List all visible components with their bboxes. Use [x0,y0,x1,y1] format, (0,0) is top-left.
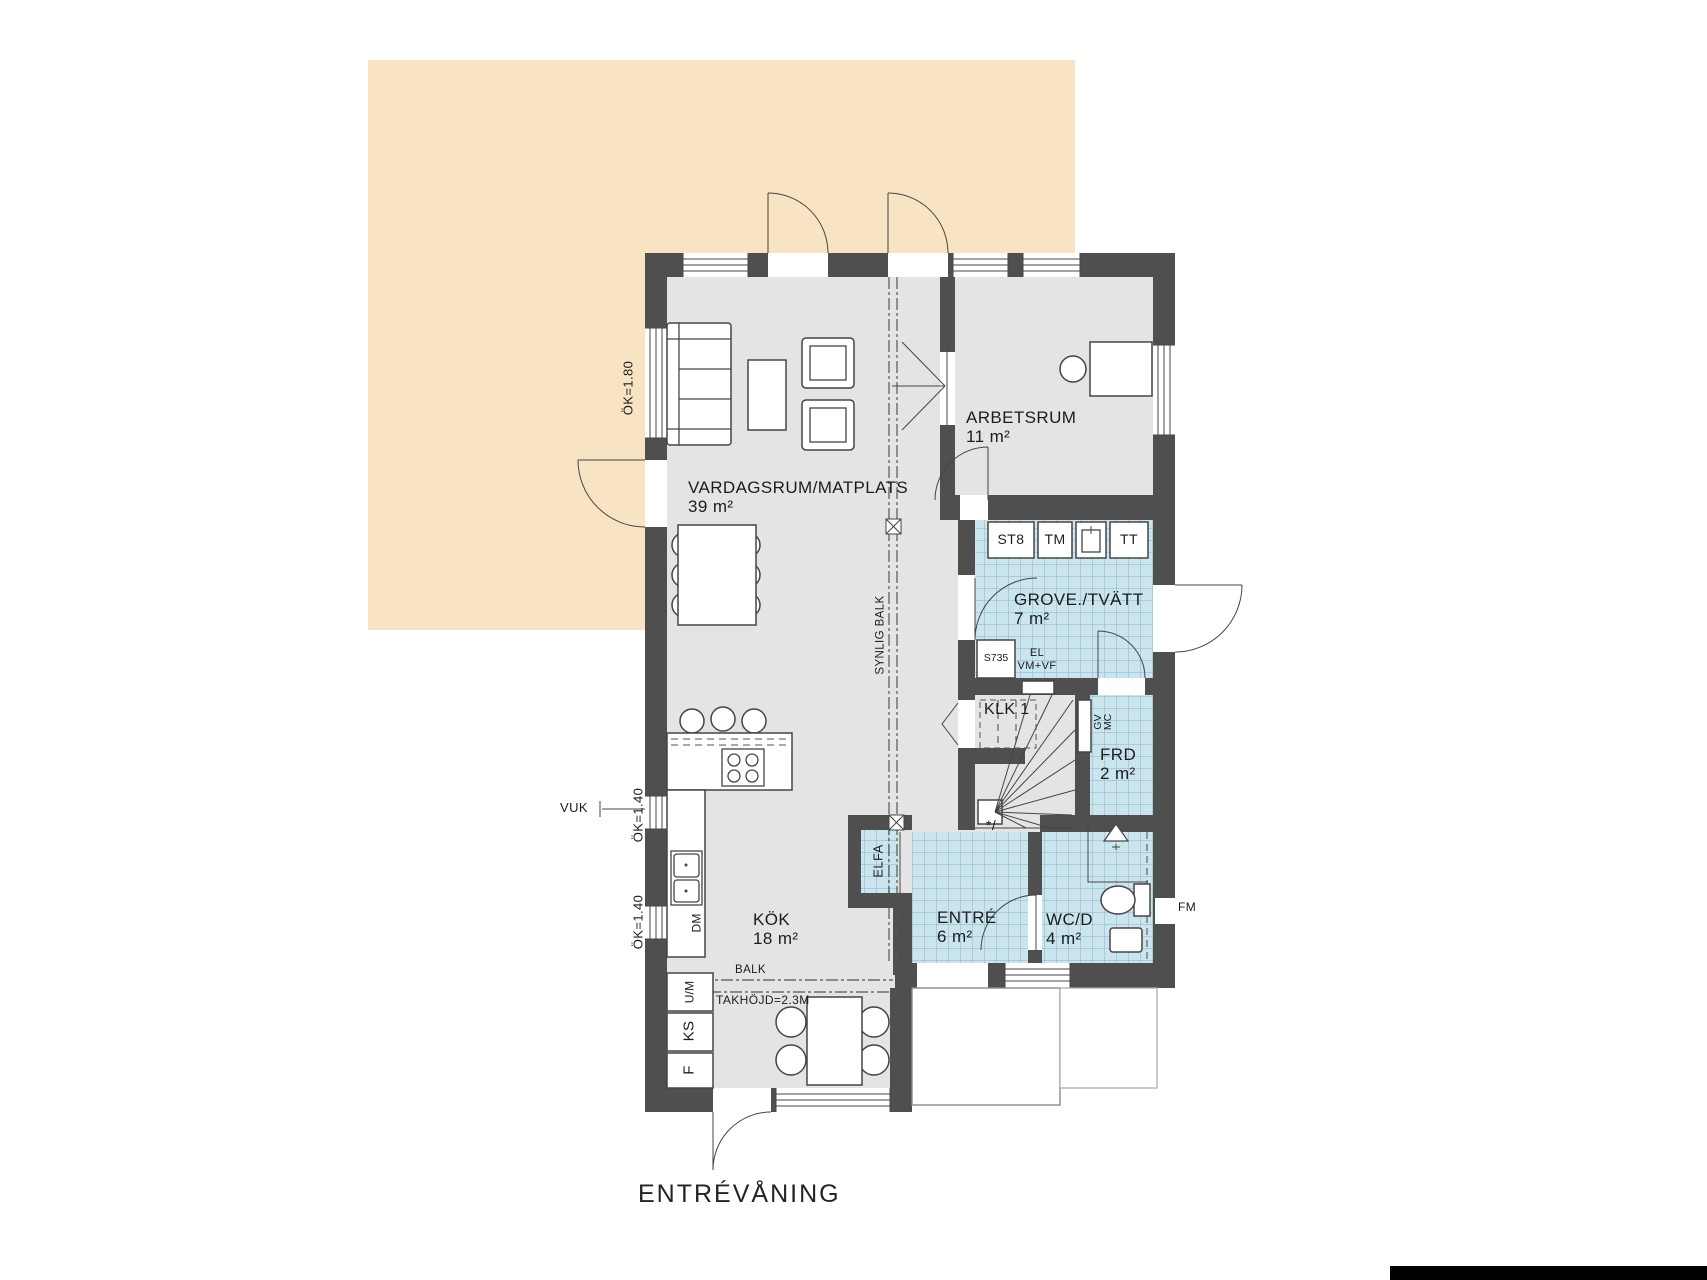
label-f: F [682,1065,699,1075]
window-entre-front [1005,963,1070,988]
window-right-arbetsrum [1153,345,1175,435]
window-left-living [645,328,667,438]
label-um: U/M [683,981,696,1004]
washbasin [1110,928,1142,952]
label-dm: DM [690,913,703,932]
room-label-vardagsrum: VARDAGSRUM/MATPLATS 39 m² [688,478,908,516]
nook-table [807,997,862,1085]
label-vmvf: VM+VF [1018,660,1057,672]
room-name: KÖK [753,910,798,929]
kitchen-peninsula [667,733,792,790]
entrance-porch [912,988,1157,1105]
beam-symbol-top [886,519,901,534]
room-label-frd: FRD 2 m² [1100,745,1136,783]
bar-stool [711,707,735,731]
label-fm: FM [1178,901,1196,914]
room-name: VARDAGSRUM/MATPLATS [688,478,908,497]
room-label-grovtvatt: GROVE./TVÄTT 7 m² [1014,590,1143,628]
label-floor-change: */ [986,818,996,834]
room-name: ARBETSRUM [966,408,1076,427]
room-name: ENTRÉ [937,908,997,927]
desk-chair [1060,356,1086,382]
label-tt: TT [1120,532,1138,548]
desk [1090,342,1152,396]
label-s735: S735 [984,653,1009,665]
wall-niche [1022,681,1054,694]
fm-niche [1155,898,1175,924]
label-vuk: VUK [560,801,588,816]
room-label-entre: ENTRÉ 6 m² [937,908,997,946]
room-area: 11 m² [966,427,1076,446]
label-ok140-lower: ÖK=1.40 [632,895,647,949]
gv-mc-unit [1078,700,1091,752]
sofa [667,323,731,445]
stair-rail-wall [975,748,1025,764]
room-label-klk: KLK 1 [984,701,1030,719]
room-name: WC/D [1046,910,1093,929]
room-name: GROVE./TVÄTT [1014,590,1143,609]
room-label-arbetsrum: ARBETSRUM 11 m² [966,408,1076,446]
label-ks: KS [682,1021,699,1042]
room-name: FRD [1100,745,1136,764]
label-el: EL [1030,647,1044,659]
room-label-kok: KÖK 18 m² [753,910,798,948]
dining-table [678,525,756,625]
toilet [1101,884,1150,916]
bar-stool [742,709,766,733]
label-elfa: ELFA [872,844,887,877]
floorplan-canvas: VARDAGSRUM/MATPLATS 39 m² ARBETSRUM 11 m… [0,0,1707,1280]
armchair-2 [802,400,854,450]
label-tm: TM [1044,532,1065,548]
label-synlig-balk: SYNLIG BALK [875,595,888,674]
room-name: KLK 1 [984,701,1030,719]
room-area: 7 m² [1014,609,1143,628]
window-top-1 [683,253,748,277]
coffee-table [748,360,786,430]
room-area: 39 m² [688,497,908,516]
watermark-bar [1390,1266,1707,1280]
kitchen-exterior-door [713,1112,771,1170]
window-left-kitchen-1 [645,796,667,829]
beam-symbol-bottom [889,815,904,830]
laundry-exterior-door [1175,585,1242,652]
bar-stool [680,709,704,733]
drawing-title: ENTRÉVÅNING [638,1180,841,1208]
window-top-3 [1023,253,1080,277]
dining-table-chairs [672,525,760,625]
label-mc: MC [1103,714,1115,730]
room-area: 4 m² [1046,929,1093,948]
room-area: 18 m² [753,929,798,948]
label-st8: ST8 [998,532,1025,548]
laundry-sink [1076,522,1106,558]
room-area: 6 m² [937,927,997,946]
armchair-1 [802,338,854,388]
room-label-wcd: WC/D 4 m² [1046,910,1093,948]
window-top-2 [953,253,1008,277]
label-ok180: ÖK=1.80 [622,361,637,415]
label-balk: BALK [735,964,766,977]
label-takhojd: TAKHÖJD=2.3M [716,994,810,1007]
label-ok140-upper: ÖK=1.40 [632,788,647,842]
floorplan-drawing [0,0,1707,1280]
window-bottom-nook [776,1088,890,1112]
room-area: 2 m² [1100,764,1136,783]
window-left-kitchen-2 [645,906,667,939]
